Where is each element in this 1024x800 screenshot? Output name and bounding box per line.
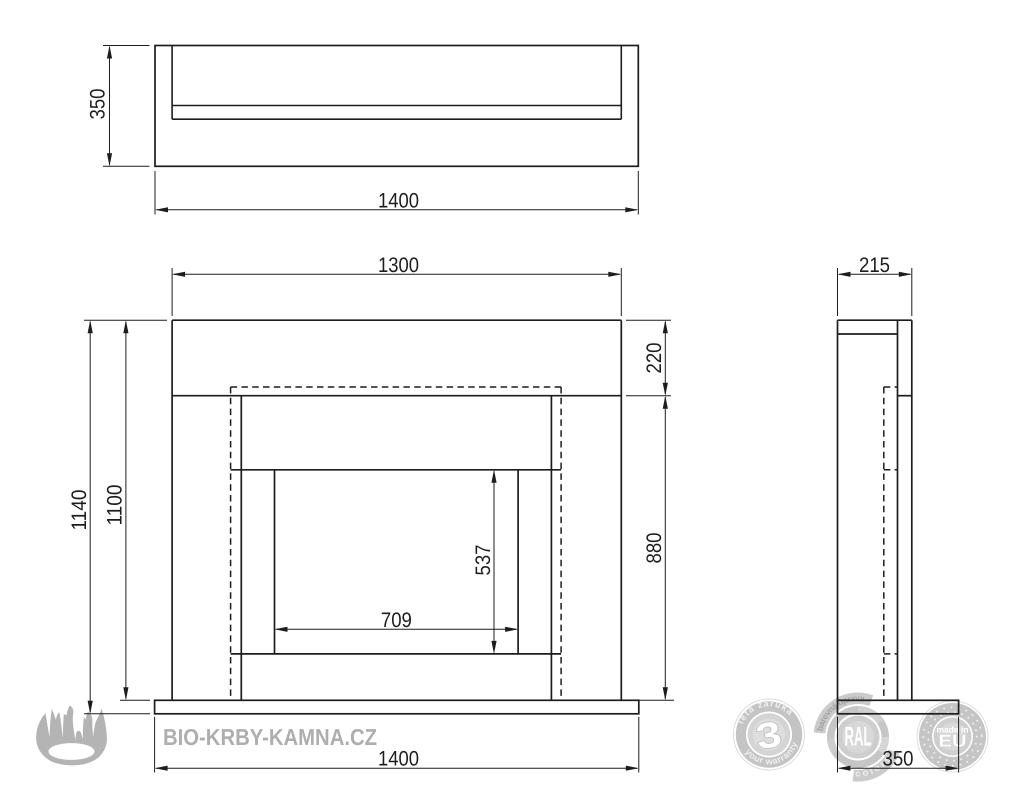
svg-text:1400: 1400 [378,748,419,771]
svg-text:350: 350 [883,748,914,771]
svg-text:1400: 1400 [378,189,419,212]
svg-text:BIO-KRBY-KAMNA.CZ: BIO-KRBY-KAMNA.CZ [163,724,377,750]
svg-text:1300: 1300 [378,254,419,277]
svg-text:EU: EU [939,732,967,751]
svg-text:537: 537 [472,545,495,576]
svg-text:1140: 1140 [68,490,91,531]
svg-text:1100: 1100 [104,485,127,526]
svg-text:709: 709 [381,609,412,632]
svg-text:RAL: RAL [845,722,872,752]
svg-text:880: 880 [643,533,666,564]
svg-text:220: 220 [643,343,666,374]
svg-text:215: 215 [859,254,890,277]
svg-text:350: 350 [87,89,110,120]
